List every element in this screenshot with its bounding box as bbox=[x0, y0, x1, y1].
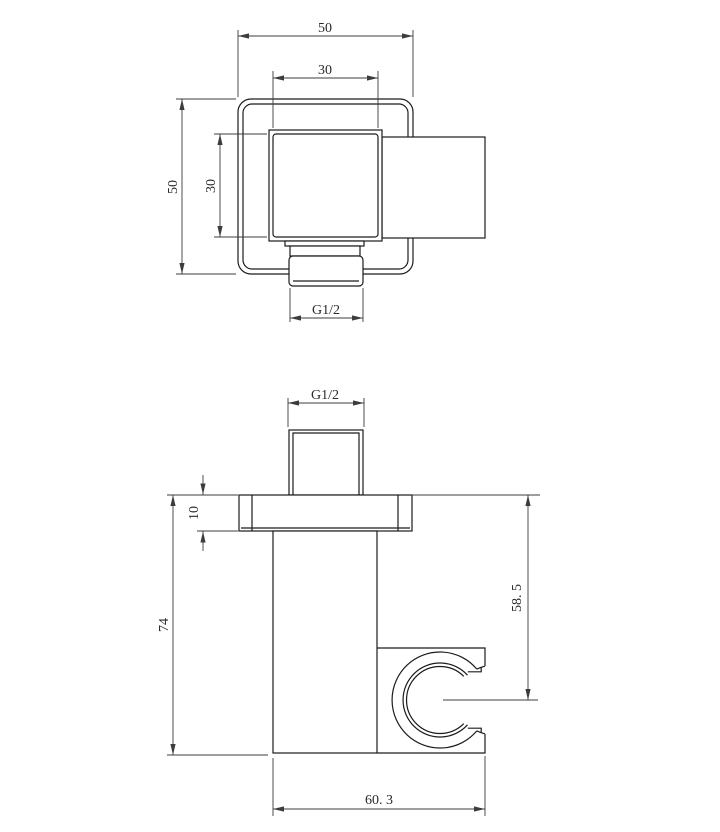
holder-block-top-view bbox=[382, 137, 485, 238]
dim-label-inner-height: 30 bbox=[204, 179, 219, 193]
dim-label-thread-front: G1/2 bbox=[311, 388, 339, 403]
thread-connector-front bbox=[289, 430, 363, 495]
dim-label-overall-width: 50 bbox=[318, 21, 332, 36]
shower-holder-technical-drawing: 50 30 50 30 G1/2 bbox=[0, 0, 720, 832]
dim-label-clip-center-height: 58. 5 bbox=[510, 584, 525, 612]
wall-flange bbox=[239, 495, 412, 531]
dim-label-inner-width: 30 bbox=[318, 63, 332, 78]
front-view: G1/2 10 74 58. 5 60. 3 bbox=[157, 388, 540, 816]
main-body bbox=[273, 531, 377, 753]
top-view: 50 30 50 30 G1/2 bbox=[166, 21, 485, 322]
dim-label-overall-depth: 60. 3 bbox=[365, 793, 393, 808]
technical-drawing-page: 50 30 50 30 G1/2 bbox=[0, 0, 720, 832]
connector-step bbox=[285, 241, 364, 246]
connector-neck bbox=[290, 246, 360, 256]
dim-label-overall-height: 50 bbox=[166, 180, 181, 194]
top-view-geometry bbox=[238, 99, 485, 286]
square-boss-outline bbox=[269, 130, 382, 241]
dim-label-plate-thickness: 10 bbox=[187, 506, 202, 520]
dim-label-total-height: 74 bbox=[157, 618, 172, 632]
dim-label-thread-top-view: G1/2 bbox=[312, 303, 340, 318]
front-view-geometry bbox=[239, 430, 485, 753]
